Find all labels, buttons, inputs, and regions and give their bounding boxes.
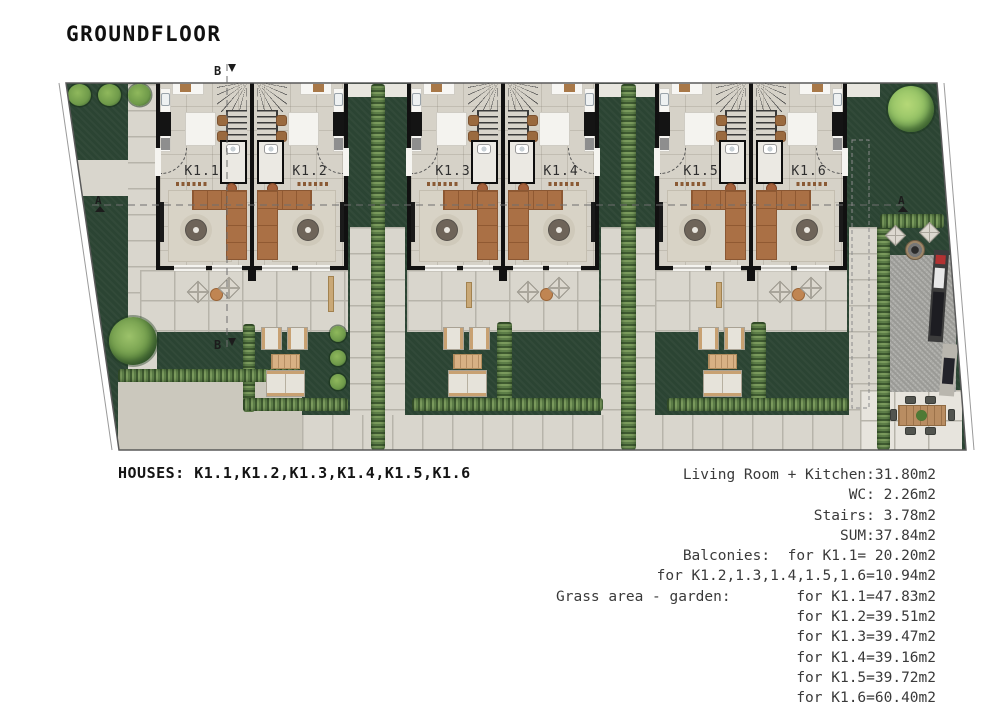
boundary-offset-right	[944, 83, 974, 450]
grass-area-line: for K1.2=39.51m2	[380, 607, 936, 627]
grass-area-label: Grass area - garden:	[556, 587, 731, 607]
grass-area-line: for K1.6=60.40m2	[380, 688, 936, 708]
grass-area-line: for K1.3=39.47m2	[380, 627, 936, 647]
marker-triangle-icon	[228, 64, 236, 72]
site-boundary-overlay: B B A A	[0, 0, 1007, 462]
grass-area-line: for K1.4=39.16m2	[380, 648, 936, 668]
floorplan-page: GROUNDFLOOR	[0, 0, 1007, 720]
area-line: Balconies: for K1.1= 20.20m2	[380, 546, 936, 566]
dashed-extension	[852, 140, 869, 408]
area-line: Living Room + Kitchen:31.80m2	[380, 465, 936, 485]
section-marker-b-top: B	[214, 64, 221, 78]
section-marker-b-bottom: B	[214, 338, 221, 352]
area-line: WC: 2.26m2	[380, 485, 936, 505]
grass-area-line: Grass area - garden:for K1.1=47.83m2	[380, 587, 936, 607]
section-marker-a-left: A	[95, 194, 102, 207]
plot-boundary	[66, 83, 966, 450]
grass-area-value: for K1.1=47.83m2	[796, 589, 936, 605]
boundary-offset-left	[59, 83, 112, 450]
houses-label: HOUSES:	[118, 464, 194, 482]
grass-area-line: for K1.5=39.72m2	[380, 668, 936, 688]
area-summary: Living Room + Kitchen:31.80m2 WC: 2.26m2…	[380, 465, 936, 709]
area-line: Stairs: 3.78m2	[380, 506, 936, 526]
area-line: for K1.2,1.3,1.4,1.5,1.6=10.94m2	[380, 566, 936, 586]
area-line: SUM:37.84m2	[380, 526, 936, 546]
marker-triangle-icon	[228, 338, 236, 346]
section-marker-a-right: A	[898, 194, 905, 207]
